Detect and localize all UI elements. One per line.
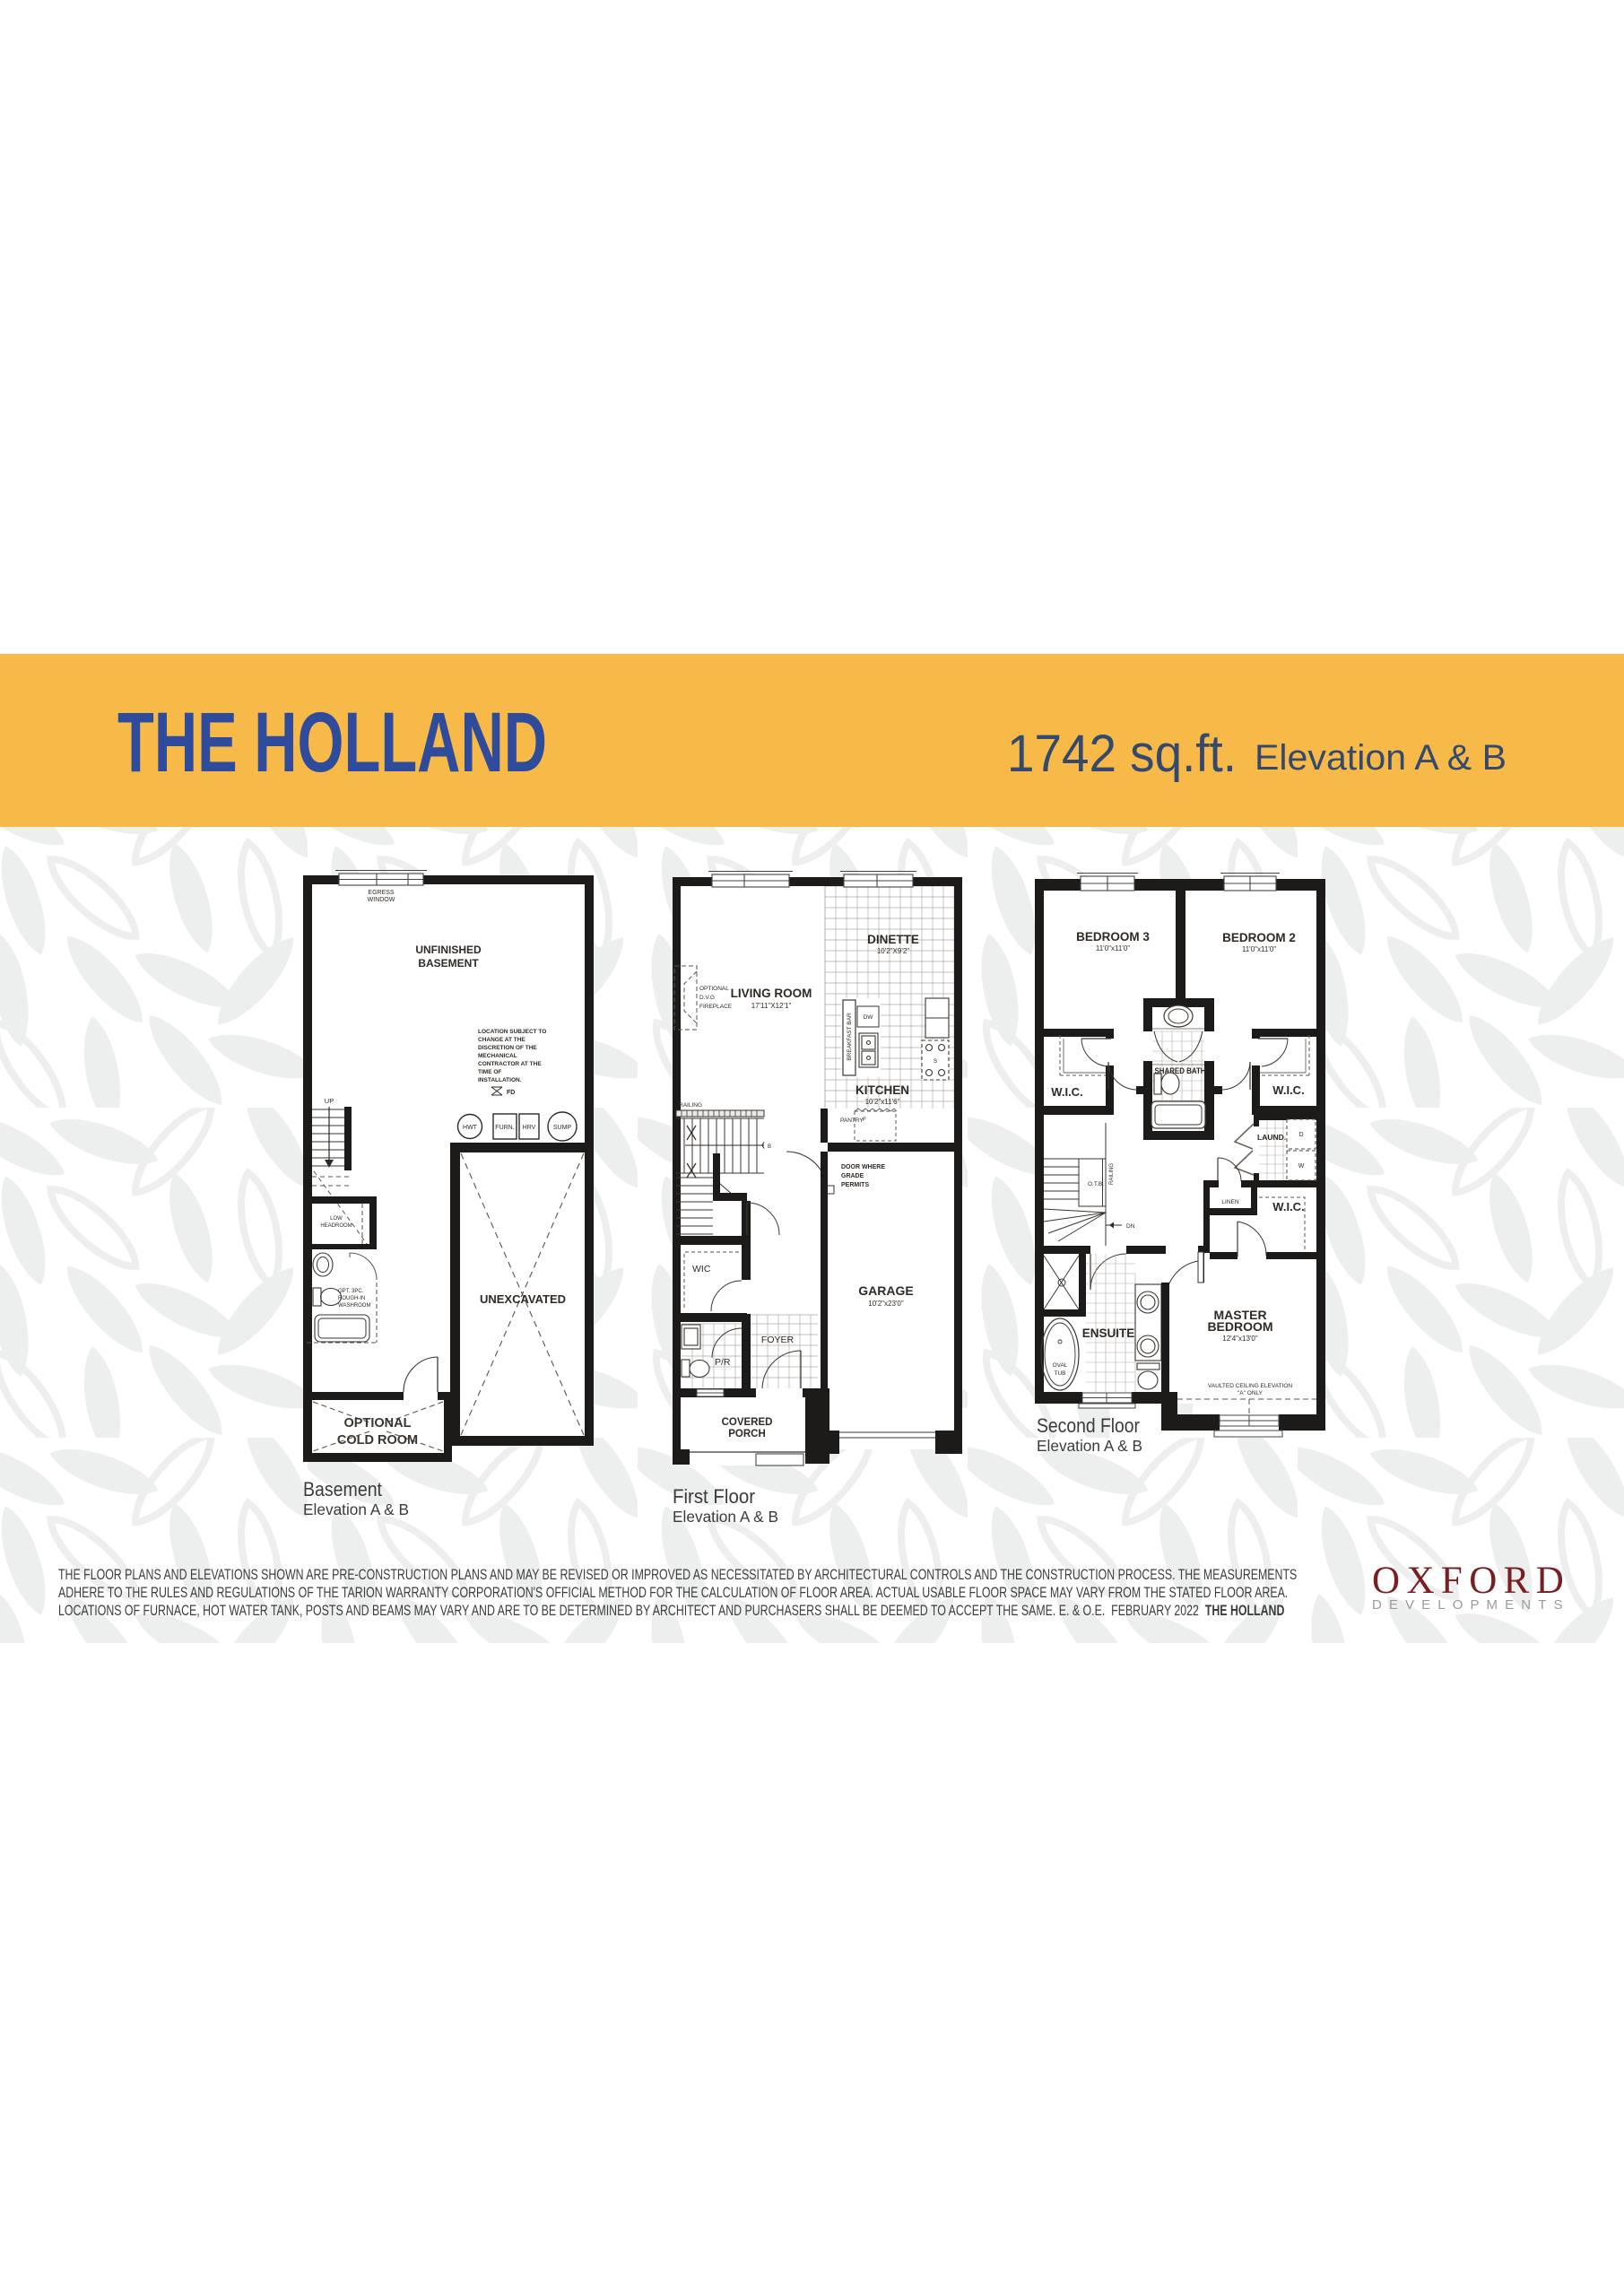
svg-text:GRADE: GRADE [841, 1173, 864, 1179]
svg-text:THE HOLLAND: THE HOLLAND [117, 695, 547, 790]
svg-text:OPT. 3PC.: OPT. 3PC. [338, 1289, 364, 1294]
svg-text:INSTALLATION.: INSTALLATION. [478, 1077, 522, 1083]
svg-text:DW: DW [864, 1014, 874, 1021]
svg-text:10'2"X9'2": 10'2"X9'2" [877, 947, 909, 955]
svg-text:BREAKFAST BAR: BREAKFAST BAR [847, 1013, 853, 1061]
svg-text:B: B [768, 1144, 771, 1150]
svg-text:CHANGE AT THE: CHANGE AT THE [478, 1037, 525, 1043]
svg-text:MECHANICAL: MECHANICAL [478, 1053, 517, 1059]
svg-text:W.I.C.: W.I.C. [1051, 1085, 1082, 1099]
svg-text:OPTIONAL: OPTIONAL [344, 1416, 412, 1431]
svg-text:Elevation A & B: Elevation A & B [1037, 1437, 1142, 1455]
svg-text:ENSUITE: ENSUITE [1082, 1326, 1135, 1340]
svg-text:Elevation A & B: Elevation A & B [303, 1500, 409, 1518]
svg-text:S: S [934, 1058, 938, 1065]
svg-text:10'2"x23'0": 10'2"x23'0" [868, 1300, 904, 1308]
svg-text:LAUND.: LAUND. [1257, 1133, 1286, 1142]
svg-text:D: D [1298, 1132, 1303, 1138]
svg-text:ROUGH-IN: ROUGH-IN [338, 1296, 365, 1301]
svg-text:BASEMENT: BASEMENT [418, 957, 479, 970]
svg-text:17'11"X12'1": 17'11"X12'1" [751, 1002, 792, 1010]
svg-text:FD: FD [507, 1090, 515, 1096]
svg-text:"A" ONLY: "A" ONLY [1238, 1390, 1264, 1396]
svg-text:11'0"x11'0": 11'0"x11'0" [1242, 945, 1276, 953]
svg-text:FIREPLACE: FIREPLACE [699, 1004, 733, 1010]
svg-text:CONTRACTOR AT THE: CONTRACTOR AT THE [478, 1061, 542, 1067]
svg-text:WASHROOM: WASHROOM [338, 1303, 370, 1309]
svg-text:RAILING: RAILING [679, 1102, 702, 1109]
svg-text:HEADROOM: HEADROOM [320, 1223, 352, 1229]
svg-text:11'0"x11'0": 11'0"x11'0" [1096, 944, 1130, 952]
svg-text:LOW: LOW [330, 1216, 343, 1222]
svg-text:F: F [863, 1117, 866, 1123]
svg-text:UNEXCAVATED: UNEXCAVATED [480, 1292, 566, 1306]
svg-text:P/R: P/R [715, 1357, 731, 1368]
svg-text:KITCHEN: KITCHEN [855, 1083, 909, 1097]
svg-text:W: W [1298, 1163, 1305, 1170]
svg-text:Elevation A & B: Elevation A & B [673, 1508, 778, 1526]
svg-text:D.V.G: D.V.G [699, 995, 715, 1001]
svg-text:TUB: TUB [1055, 1370, 1066, 1377]
svg-text:BEDROOM 2: BEDROOM 2 [1222, 931, 1296, 944]
svg-text:DOOR WHERE: DOOR WHERE [841, 1164, 885, 1170]
svg-text:O.T.B.: O.T.B. [1088, 1181, 1104, 1187]
svg-text:TIME OF: TIME OF [478, 1069, 501, 1075]
svg-text:LINEN: LINEN [1221, 1199, 1238, 1205]
svg-text:First Floor: First Floor [673, 1485, 755, 1508]
svg-text:PERMITS: PERMITS [841, 1182, 869, 1188]
svg-text:BEDROOM 3: BEDROOM 3 [1076, 930, 1150, 944]
svg-text:12'4"x13'0": 12'4"x13'0" [1222, 1335, 1258, 1343]
svg-text:10'2"x11'6": 10'2"x11'6" [865, 1098, 900, 1106]
svg-text:W.I.C.: W.I.C. [1272, 1083, 1304, 1097]
svg-text:RAILING: RAILING [1109, 1163, 1115, 1185]
svg-text:Basement: Basement [303, 1478, 382, 1500]
svg-text:COLD ROOM: COLD ROOM [337, 1433, 418, 1448]
svg-text:HRV: HRV [523, 1125, 536, 1131]
svg-text:DN: DN [1126, 1223, 1135, 1230]
svg-text:FURN.: FURN. [495, 1125, 514, 1131]
svg-text:SHARED BATH: SHARED BATH [1155, 1066, 1206, 1076]
svg-text:W.I.C.: W.I.C. [1272, 1200, 1304, 1213]
svg-text:OPTIONAL: OPTIONAL [699, 986, 729, 992]
svg-text:PANTRY: PANTRY [840, 1118, 864, 1124]
svg-text:HWT: HWT [463, 1125, 478, 1131]
svg-text:OVAL: OVAL [1053, 1362, 1068, 1369]
svg-text:COVERED: COVERED [722, 1417, 773, 1428]
svg-text:FOYER: FOYER [761, 1335, 795, 1345]
svg-text:VAULTED CEILING ELEVATION: VAULTED CEILING ELEVATION [1208, 1383, 1292, 1389]
svg-text:DISCRETION OF THE: DISCRETION OF THE [478, 1045, 537, 1051]
svg-text:SUMP: SUMP [553, 1125, 572, 1131]
svg-text:DINETTE: DINETTE [867, 933, 919, 946]
svg-text:1742 sq.ft.: 1742 sq.ft. [1007, 725, 1237, 783]
svg-text:WIC: WIC [692, 1264, 711, 1274]
svg-text:GARAGE: GARAGE [858, 1283, 913, 1298]
svg-text:WINDOW: WINDOW [368, 897, 395, 903]
svg-text:PORCH: PORCH [728, 1429, 766, 1439]
svg-text:LOCATION SUBJECT TO: LOCATION SUBJECT TO [478, 1029, 546, 1035]
svg-text:UP: UP [325, 1097, 334, 1105]
svg-text:LIVING ROOM: LIVING ROOM [731, 987, 812, 1000]
svg-text:BEDROOM: BEDROOM [1207, 1319, 1272, 1334]
svg-text:EGRESS: EGRESS [368, 890, 395, 896]
svg-text:Elevation A & B: Elevation A & B [1255, 738, 1507, 778]
svg-text:Second Floor: Second Floor [1037, 1414, 1140, 1437]
svg-text:UNFINISHED: UNFINISHED [415, 944, 482, 956]
